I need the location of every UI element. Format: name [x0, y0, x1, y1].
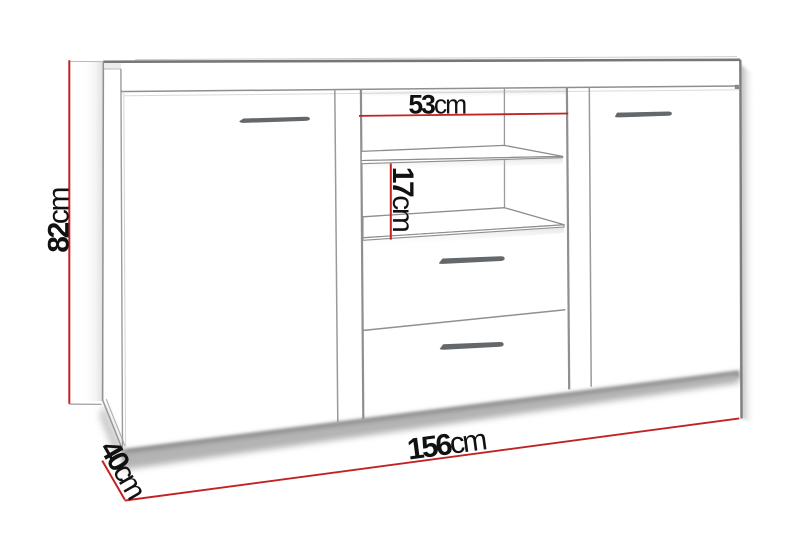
svg-text:17cm: 17cm	[386, 167, 419, 232]
svg-text:53cm: 53cm	[408, 90, 466, 120]
svg-text:82cm: 82cm	[42, 188, 75, 253]
